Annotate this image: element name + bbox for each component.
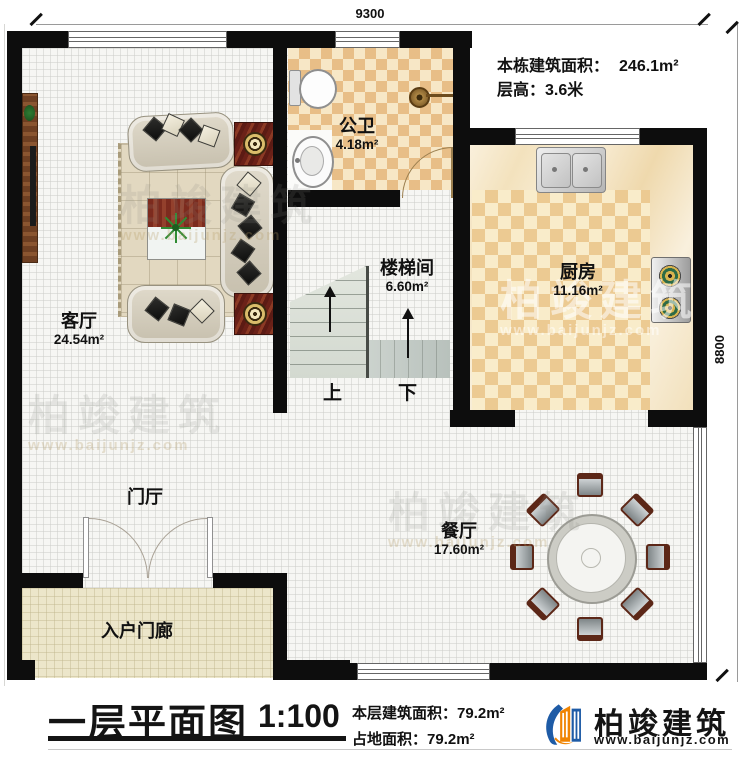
- shower-head-icon: [409, 87, 430, 108]
- stair-down-label: 下: [398, 378, 417, 405]
- wall-bath-bottom: [288, 190, 400, 207]
- wall: [648, 410, 707, 427]
- dimension-right-value: 8800: [712, 320, 727, 380]
- room-label-kitchen: 厨房 11.16m²: [518, 262, 638, 298]
- room-name: 公卫: [307, 116, 407, 137]
- bath-door-leaf: [451, 147, 453, 198]
- wall: [287, 663, 357, 680]
- burner-icon: [658, 264, 682, 288]
- table-plant-icon: [161, 213, 191, 243]
- room-name: 餐厅: [399, 521, 519, 542]
- window-kitchen-top: [515, 128, 640, 145]
- stair-up-label: 上: [323, 378, 342, 405]
- room-label-stair: 楼梯间 6.60m²: [347, 258, 467, 294]
- wall: [678, 663, 707, 680]
- building-area-info: 本栋建筑面积：246.1m²: [497, 52, 679, 76]
- window-dining-bottom: [357, 663, 490, 680]
- dim-tick: [715, 669, 728, 682]
- dining-chair: [577, 617, 603, 641]
- wall-kitchen-right: [693, 128, 707, 427]
- cabinet-rosette-icon: [243, 132, 267, 156]
- wall: [288, 31, 335, 48]
- room-name: 楼梯间: [347, 258, 467, 279]
- room-name: 厨房: [518, 262, 638, 283]
- stair-up-arrow-line: [329, 296, 331, 332]
- wall-bath-kitchen: [453, 31, 470, 410]
- room-area: 24.54m²: [29, 332, 129, 348]
- dimension-line-right: [737, 24, 738, 682]
- window-bath-top: [335, 31, 400, 48]
- cabinet-rosette-icon: [243, 302, 267, 326]
- side-cabinet-top: [234, 122, 276, 166]
- land-area-value: 79.2m²: [427, 731, 475, 748]
- room-name: 门厅: [95, 487, 195, 508]
- dining-chair: [577, 473, 603, 497]
- building-area-label: 本栋建筑面积：: [497, 58, 609, 75]
- wall: [7, 660, 35, 680]
- plant-icon: [24, 105, 35, 121]
- wall: [490, 663, 678, 680]
- tv: [30, 146, 36, 226]
- room-label-foyer: 门厅: [95, 487, 195, 508]
- dimension-line-top: [36, 24, 708, 25]
- plan-scale: 1:100: [258, 698, 340, 735]
- extension-line-left: [4, 24, 5, 686]
- room-label-dining: 餐厅 17.60m²: [399, 521, 519, 557]
- floor-area-value: 79.2m²: [457, 705, 505, 722]
- building-area-value: 246.1m²: [619, 58, 679, 75]
- kitchen-sink-drain: [552, 167, 557, 172]
- wall: [22, 573, 83, 588]
- kitchen-sink-drain: [583, 167, 588, 172]
- wall-living-stair: [273, 31, 287, 413]
- floor-plan-canvas: 上 下: [0, 0, 750, 761]
- side-cabinet-bottom: [234, 293, 276, 335]
- burner-icon: [658, 296, 682, 320]
- wall-left: [7, 31, 22, 680]
- entry-door-leaf-right: [207, 517, 213, 578]
- shower-arm: [426, 94, 453, 97]
- floor-area-info: 本层建筑面积：79.2m²: [352, 702, 505, 723]
- room-area: 17.60m²: [399, 542, 519, 558]
- toilet-icon: [299, 69, 337, 109]
- window-dining-right: [693, 427, 707, 663]
- wall: [450, 410, 515, 427]
- land-area-info: 占地面积：79.2m²: [352, 728, 475, 749]
- room-area: 11.16m²: [518, 283, 638, 299]
- dimension-top-value: 9300: [330, 6, 410, 21]
- wall: [455, 128, 515, 145]
- room-name: 客厅: [29, 311, 129, 332]
- room-label-bath: 公卫 4.18m²: [307, 116, 407, 152]
- title-underline: [48, 736, 346, 741]
- room-area: 4.18m²: [307, 137, 407, 153]
- brand-website: www.baijunjz.com: [594, 732, 730, 747]
- room-name: 入户门廊: [57, 621, 217, 642]
- room-label-living: 客厅 24.54m²: [29, 311, 129, 347]
- land-area-label: 占地面积：: [352, 731, 427, 748]
- floor-height-info: 层高：3.6米: [497, 76, 583, 100]
- kitchen-rug: [472, 190, 650, 410]
- dining-chair: [646, 544, 670, 570]
- brand-logo-icon: [540, 697, 586, 749]
- title-underline-thin: [48, 749, 732, 750]
- bath-sink-tap: [295, 158, 300, 163]
- room-label-porch: 入户门廊: [57, 621, 217, 642]
- room-area: 6.60m²: [347, 279, 467, 295]
- window-living-top: [68, 31, 227, 48]
- floor-height-value: 3.6米: [545, 82, 583, 99]
- stair-down-arrow-line: [407, 318, 409, 358]
- dining-table-center: [581, 548, 601, 568]
- floor-height-label: 层高：: [497, 82, 545, 99]
- floor-area-label: 本层建筑面积：: [352, 705, 457, 722]
